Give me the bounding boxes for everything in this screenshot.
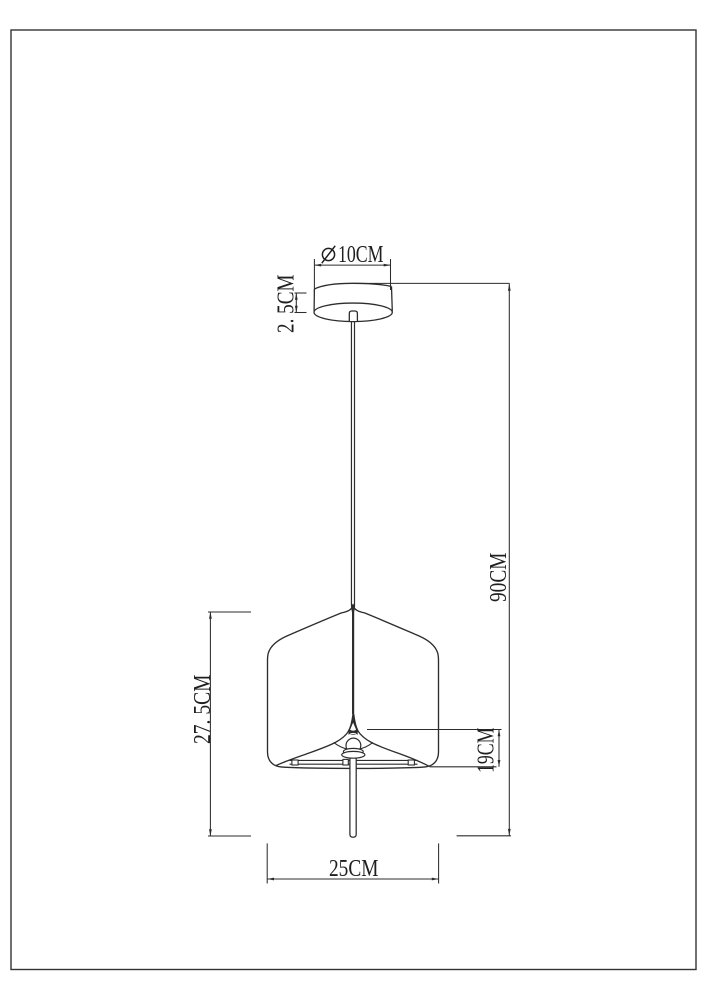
svg-text:25CM: 25CM bbox=[329, 855, 379, 882]
svg-text:2. 5CM: 2. 5CM bbox=[273, 274, 300, 333]
svg-text:10CM: 10CM bbox=[338, 241, 384, 268]
svg-text:27. 5CM: 27. 5CM bbox=[189, 674, 216, 744]
svg-text:90CM: 90CM bbox=[485, 552, 512, 602]
svg-text:19CM: 19CM bbox=[473, 727, 500, 773]
